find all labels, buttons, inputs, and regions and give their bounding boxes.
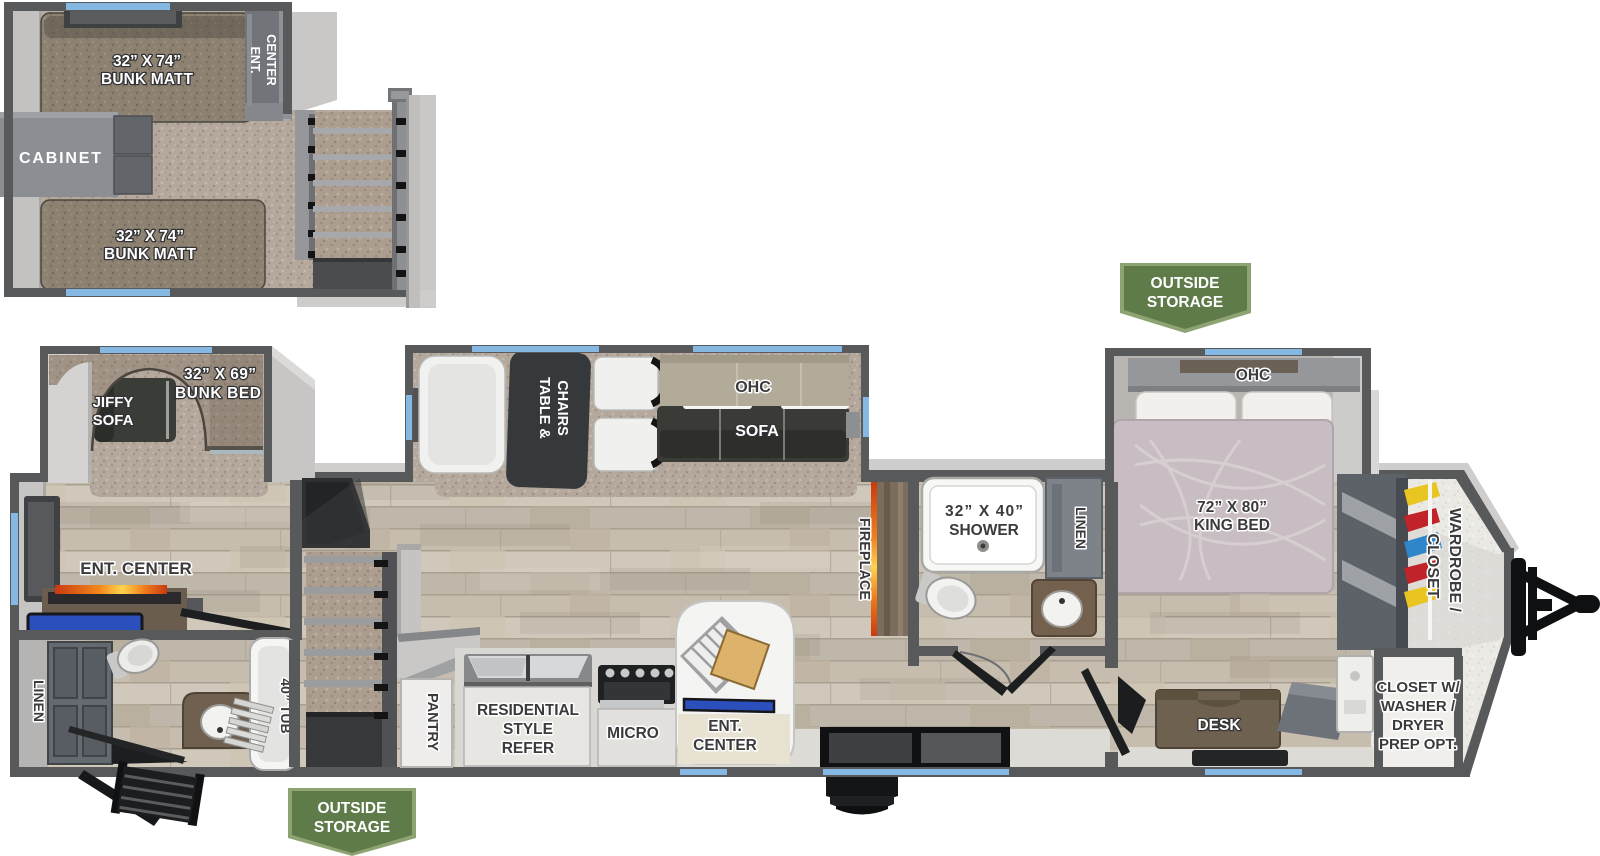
svg-text:WARDROBE /: WARDROBE / (1446, 508, 1463, 613)
svg-text:LINEN: LINEN (31, 680, 47, 722)
svg-text:32” X 74”: 32” X 74” (116, 228, 184, 245)
svg-text:STORAGE: STORAGE (1147, 294, 1223, 311)
svg-text:BUNK BED: BUNK BED (175, 385, 261, 402)
svg-text:DESK: DESK (1197, 717, 1241, 734)
svg-text:ENT.: ENT. (248, 46, 262, 73)
svg-text:LINEN: LINEN (1073, 507, 1089, 549)
svg-text:WASHER /: WASHER / (1381, 698, 1456, 715)
svg-text:PANTRY: PANTRY (424, 693, 440, 751)
svg-text:JIFFY: JIFFY (93, 394, 134, 411)
svg-text:BUNK MATT: BUNK MATT (104, 246, 197, 263)
svg-text:OHC: OHC (1236, 367, 1270, 384)
svg-text:FIREPLACE: FIREPLACE (856, 518, 872, 601)
svg-text:DRYER: DRYER (1392, 717, 1444, 734)
svg-text:STYLE: STYLE (503, 721, 553, 738)
svg-text:OUTSIDE: OUTSIDE (318, 800, 387, 817)
svg-text:TABLE &: TABLE & (536, 377, 552, 439)
svg-text:RESIDENTIAL: RESIDENTIAL (477, 702, 579, 719)
svg-text:CLOSET: CLOSET (1424, 534, 1441, 599)
svg-text:OHC: OHC (735, 379, 771, 396)
svg-text:STORAGE: STORAGE (314, 819, 390, 836)
svg-text:OUTSIDE: OUTSIDE (1151, 275, 1220, 292)
svg-text:72” X 80”: 72” X 80” (1197, 499, 1267, 516)
svg-text:CENTER: CENTER (264, 34, 278, 85)
svg-text:MICRO: MICRO (607, 725, 659, 742)
svg-text:32” X 69”: 32” X 69” (184, 366, 256, 383)
svg-text:CLOSET W/: CLOSET W/ (1376, 679, 1460, 696)
svg-text:BUNK MATT: BUNK MATT (101, 71, 194, 88)
svg-text:ENT. CENTER: ENT. CENTER (80, 559, 191, 578)
svg-text:REFER: REFER (502, 740, 555, 757)
svg-text:SOFA: SOFA (735, 423, 779, 440)
svg-text:SOFA: SOFA (93, 412, 134, 429)
svg-text:32” X 40”: 32” X 40” (945, 503, 1023, 520)
svg-text:ENT.: ENT. (708, 718, 742, 735)
svg-text:CENTER: CENTER (693, 737, 757, 754)
svg-text:SHOWER: SHOWER (949, 522, 1019, 539)
svg-text:CHAIRS: CHAIRS (554, 380, 570, 436)
svg-text:KING BED: KING BED (1194, 517, 1270, 534)
svg-text:PREP OPT.: PREP OPT. (1379, 736, 1457, 753)
svg-text:32” X 74”: 32” X 74” (113, 53, 181, 70)
